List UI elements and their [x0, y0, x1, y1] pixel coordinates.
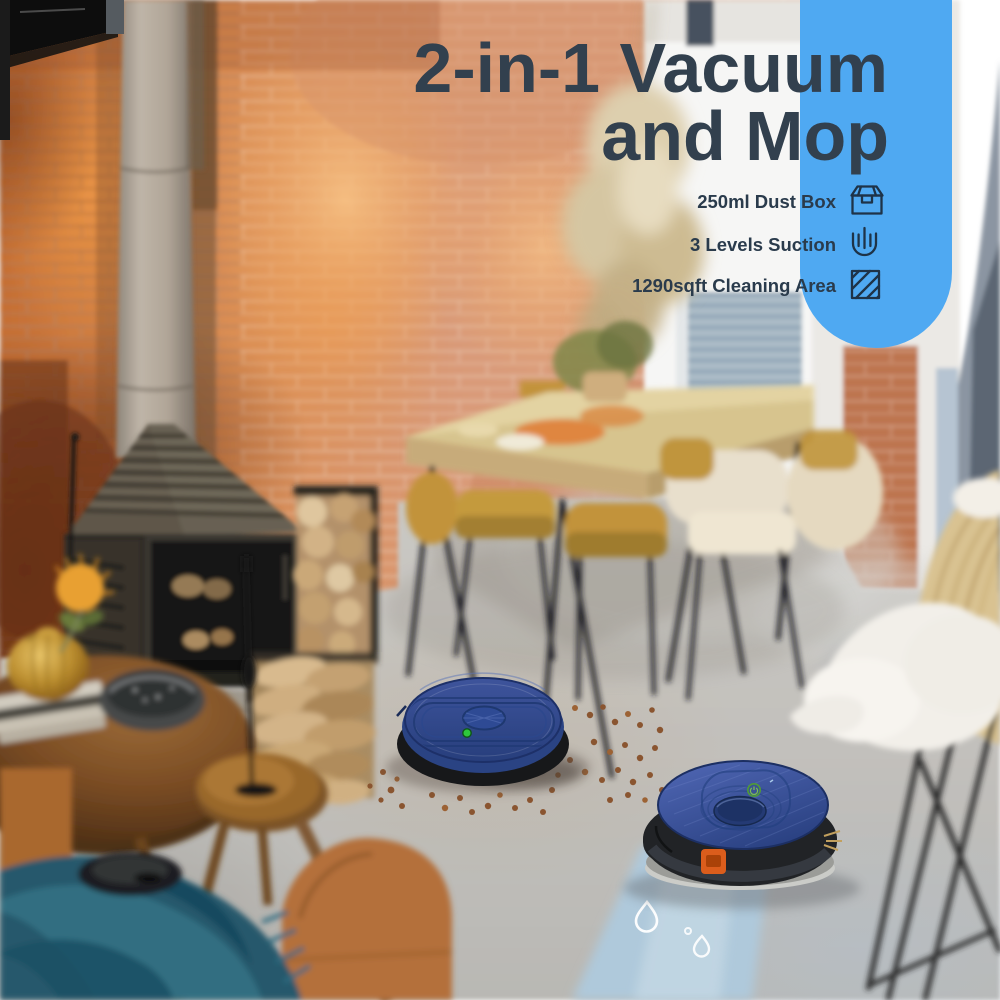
- svg-text:2-in-1 Vacuum: 2-in-1 Vacuum: [413, 29, 888, 107]
- svg-text:1290sqft Cleaning Area: 1290sqft Cleaning Area: [632, 275, 837, 296]
- svg-text:3 Levels Suction: 3 Levels Suction: [690, 234, 836, 255]
- svg-text:and Mop: and Mop: [601, 97, 889, 175]
- svg-text:250ml Dust Box: 250ml Dust Box: [697, 191, 837, 212]
